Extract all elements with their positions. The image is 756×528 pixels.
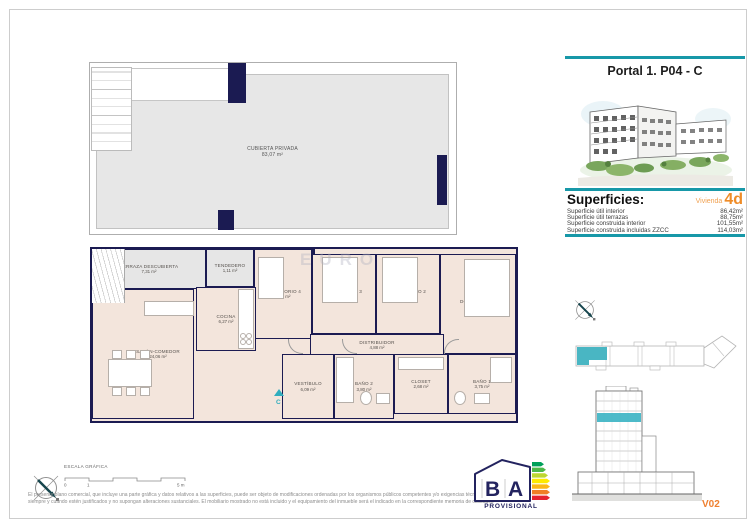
superficies-row: Superficie construida incluidas ZZCC 114… [567, 228, 743, 234]
room-area: 3,75 m² [475, 384, 490, 389]
row-value: 114,03m² [717, 228, 743, 234]
roof-walkway [126, 68, 232, 101]
bed-sketch [464, 259, 510, 317]
unit-floor-highlight [597, 413, 641, 422]
energy-letter-a: A [508, 478, 523, 501]
vivienda-label: Vivienda [696, 198, 723, 205]
toilet-sketch [360, 391, 372, 405]
watermark: EURO [300, 250, 381, 270]
divider [565, 56, 745, 59]
scale-tick-one: 1 [87, 483, 90, 488]
furniture-sketch [112, 350, 122, 359]
room-distribuidor: DISTRIBUIDOR 4,88 m² [310, 334, 444, 356]
entrance-letter: C [276, 399, 281, 406]
furniture-sketch [140, 387, 150, 396]
plan-sheet: CUBIERTA PRIVADA 83,07 m² TERRAZA DESCUB… [0, 0, 756, 528]
roof-plan: CUBIERTA PRIVADA 83,07 m² [89, 62, 457, 235]
wall-block [437, 155, 447, 205]
energy-rating-icon: B A [472, 457, 554, 503]
superficies-header: Superficies: Vivienda 4d [567, 192, 743, 207]
disclaimer-line-2: siempre y cuando estén justificados y no… [28, 499, 728, 506]
disclaimer-line-1: El presente plano comercial, que incluye… [28, 492, 728, 499]
room-area: 1,11 m² [223, 268, 238, 273]
stair-sketch [91, 67, 132, 151]
key-plan [572, 334, 740, 376]
hob-sketch [246, 339, 252, 345]
vivienda-code: 4d [724, 193, 743, 207]
floor-plan: TERRAZA DESCUBIERTA 7,31 m² TENDEDERO 1,… [90, 247, 518, 423]
entrance-marker-icon [274, 389, 284, 396]
toilet-sketch [454, 391, 466, 405]
superficies-heading: Superficies: [567, 192, 644, 207]
room-vestibulo: VESTÍBULO 6,09 m² [282, 354, 334, 419]
bathtub-sketch [336, 357, 354, 403]
divider [565, 188, 745, 191]
bed-sketch [258, 257, 284, 299]
door-arc [288, 339, 303, 354]
scale-bar: ESCALA GRÁFICA 0 1 5 m [64, 464, 194, 492]
furniture-sketch [112, 387, 122, 396]
sink-sketch [474, 393, 490, 404]
divider [565, 234, 745, 237]
shower-sketch [490, 357, 512, 383]
furniture-sketch [126, 350, 136, 359]
stair-sketch [92, 249, 125, 303]
scale-graphic: 0 1 5 m [64, 469, 194, 487]
furniture-sketch [108, 359, 152, 387]
row-label: Superficie construida incluidas ZZCC [567, 228, 669, 234]
room-area: 2,68 m² [414, 384, 429, 389]
furniture-sketch [140, 350, 150, 359]
room-area: 6,27 m² [219, 319, 234, 324]
wardrobe-sketch [398, 357, 444, 370]
room-area: 83,07 m² [262, 152, 283, 158]
compass-icon [573, 298, 597, 322]
room-area: 4,88 m² [370, 345, 385, 350]
elevation-drawing [572, 386, 702, 504]
superficies-table: Superficie útil interior 86,42m² Superfi… [567, 209, 743, 234]
room-area: 7,31 m² [142, 269, 157, 274]
energy-letter-b: B [485, 478, 500, 501]
scale-tick-start: 0 [64, 483, 67, 488]
building-illustration [578, 86, 733, 186]
furniture-sketch [144, 301, 194, 316]
wall-block [218, 210, 234, 230]
furniture-sketch [126, 387, 136, 396]
sink-sketch [376, 393, 390, 404]
provisional-label: PROVISIONAL [468, 503, 554, 510]
portal-title: Portal 1. P04 - C [565, 64, 745, 78]
room-tendedero: TENDEDERO 1,11 m² [206, 249, 254, 287]
scale-tick-end: 5 m [177, 483, 185, 488]
wall-block [228, 63, 246, 103]
bed-sketch [382, 257, 418, 303]
room-area: 6,09 m² [301, 387, 316, 392]
energy-scale-bars [532, 462, 550, 500]
